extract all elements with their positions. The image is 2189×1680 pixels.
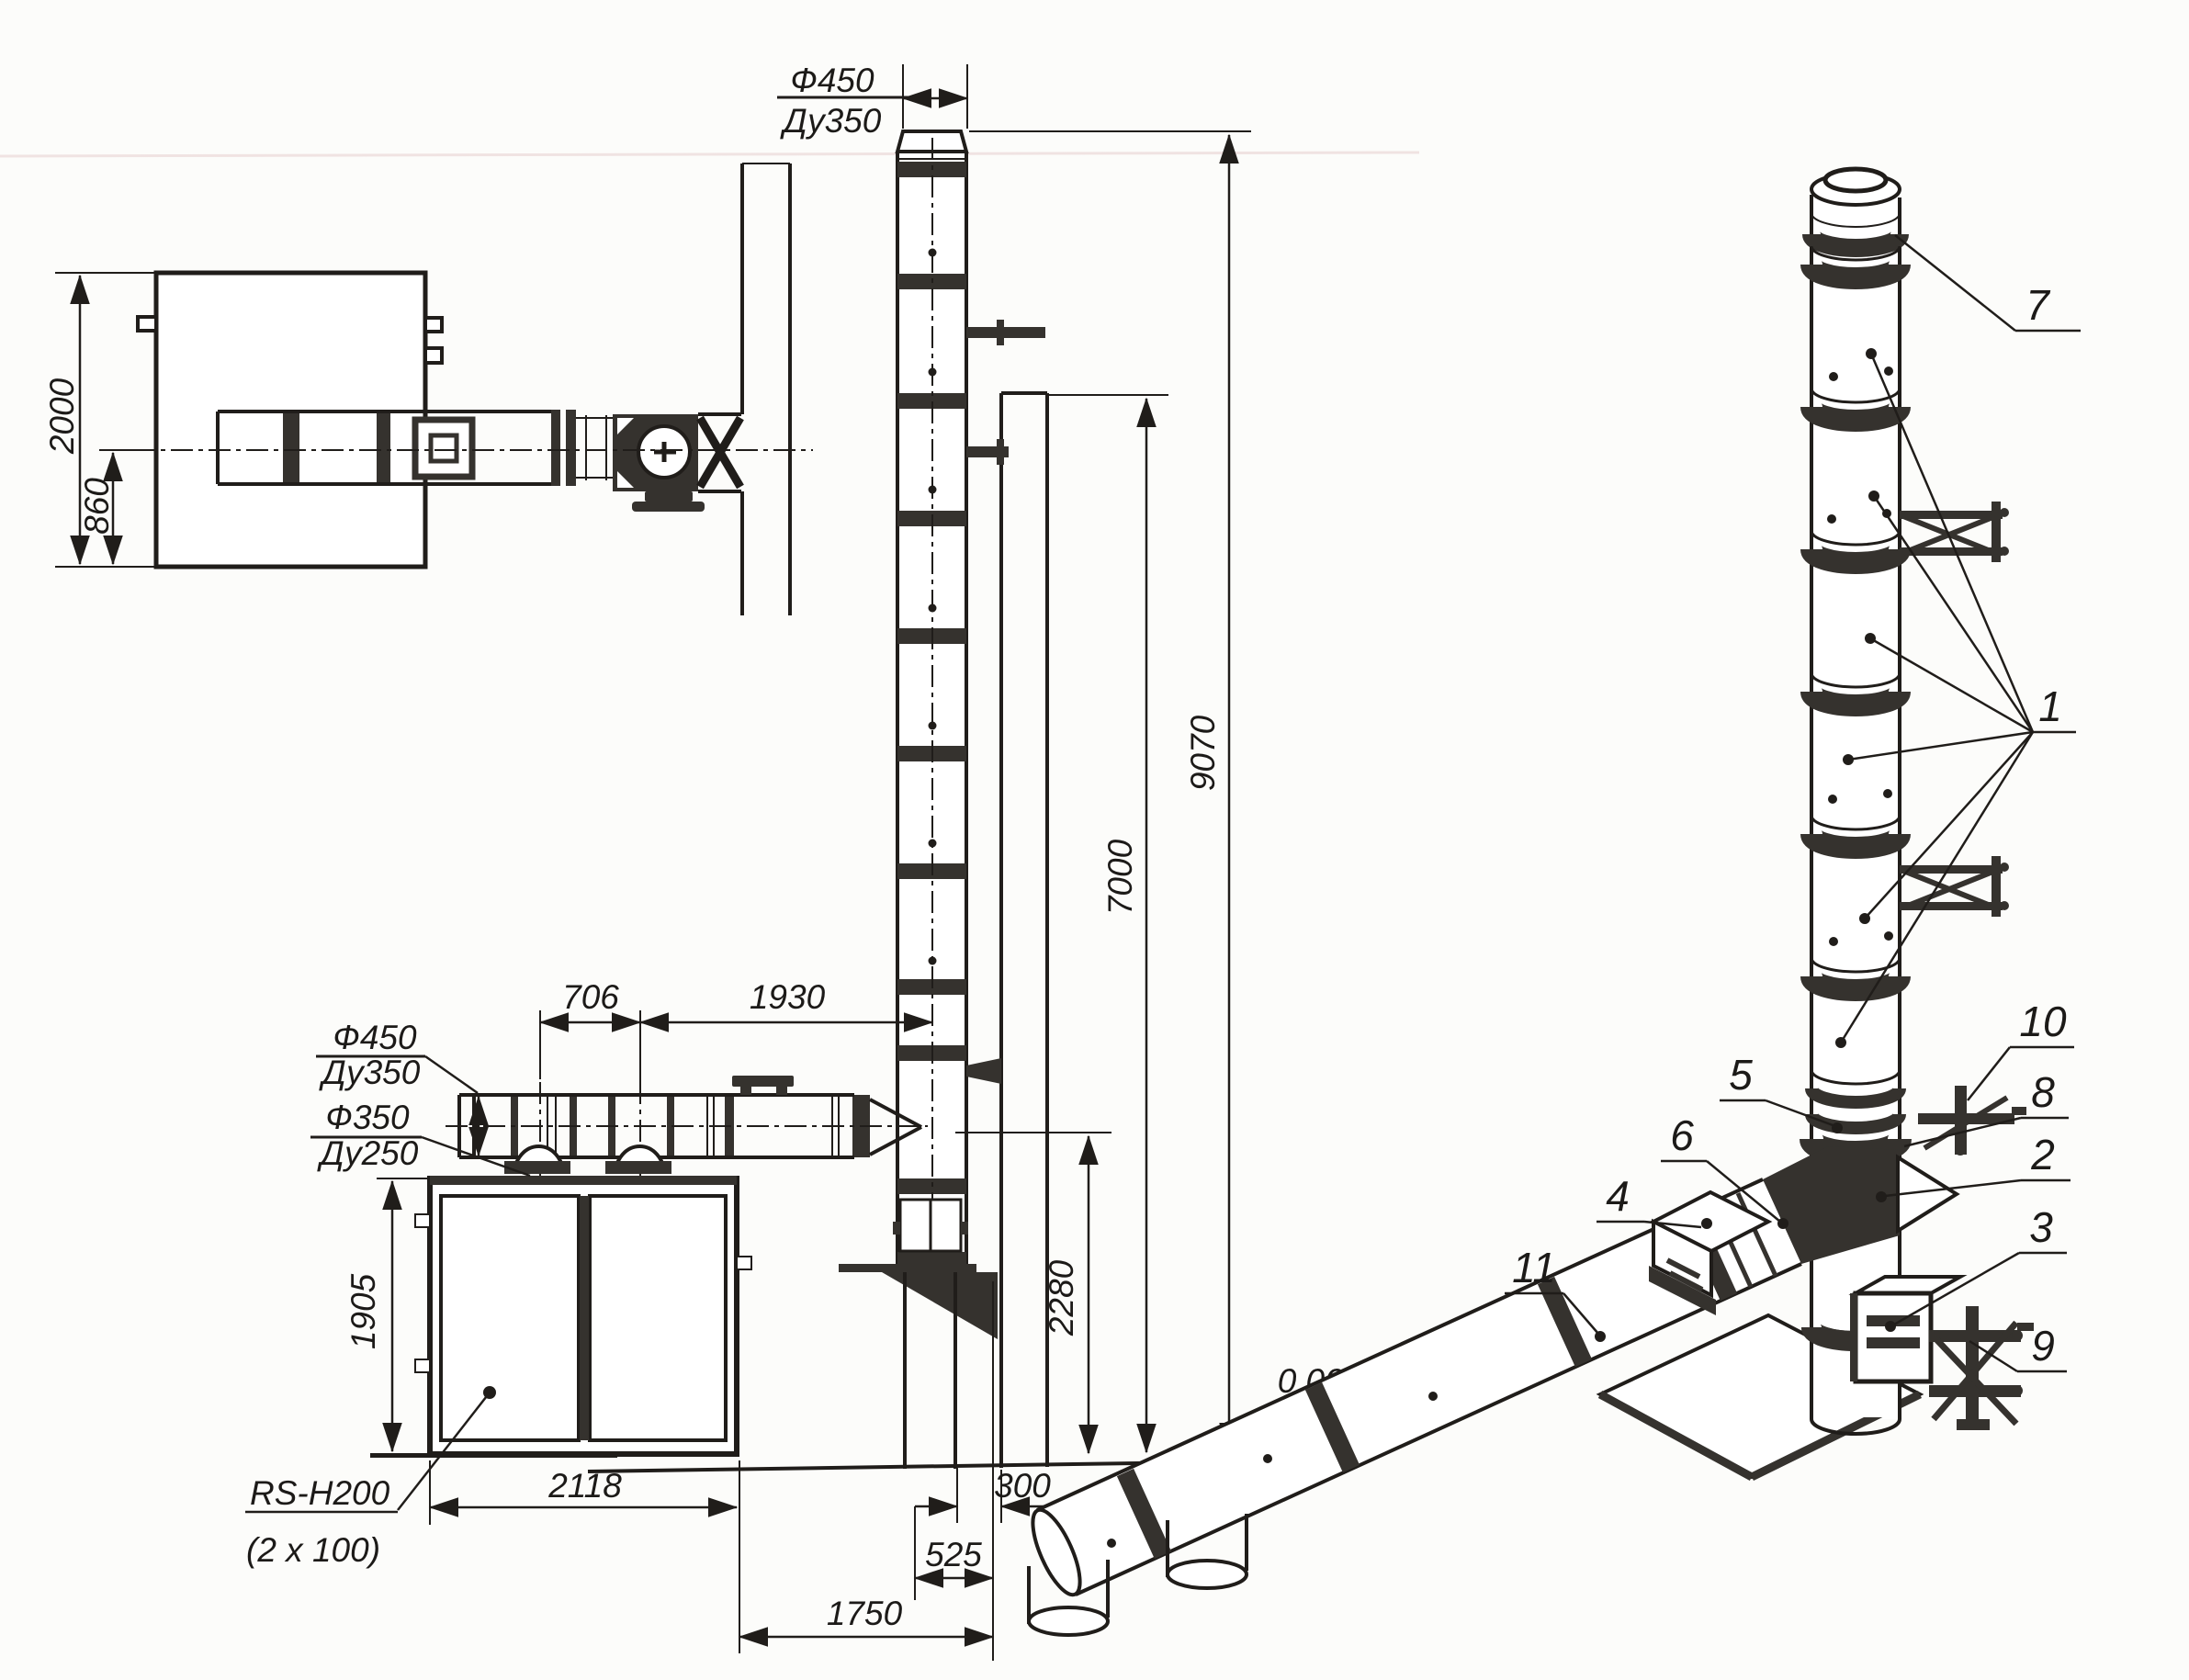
- dim-boiler-height: 1905: [344, 1273, 382, 1349]
- part-label-11: 11: [1512, 1244, 1556, 1291]
- part-label-3: 3: [2029, 1203, 2053, 1251]
- part-label-4: 4: [1606, 1172, 1630, 1220]
- stack-top-diameter: Ф450: [790, 62, 874, 99]
- boiler-model-label: RS-H200: [250, 1474, 390, 1512]
- part-label-5: 5: [1729, 1051, 1753, 1099]
- boiler-plan-stub-right-2: [425, 348, 442, 363]
- dim-duct-axis-height: 2280: [1043, 1259, 1080, 1336]
- dim-boiler-width: 2118: [547, 1467, 622, 1505]
- boiler-front-view: [415, 1176, 751, 1454]
- duct-flange-plan: [551, 410, 560, 486]
- duct-inner-diameter: Ф350: [325, 1099, 410, 1136]
- chimney-installation-drawing: 2000 860: [0, 0, 2189, 1680]
- part-label-6: 6: [1670, 1111, 1694, 1159]
- part-label-8: 8: [2031, 1068, 2055, 1116]
- boiler-plan-stub-right-1: [425, 318, 442, 332]
- boiler-plan-stub-left: [138, 317, 156, 331]
- dim-plan-depth: 2000: [43, 378, 81, 455]
- dim-outlet-spacing: 706: [562, 978, 619, 1016]
- dim-plan-axis-offset: 860: [78, 478, 116, 535]
- dim-wall-height: 7000: [1101, 839, 1139, 915]
- part-label-2: 2: [2030, 1131, 2055, 1178]
- dim-boiler-to-wall: 1750: [827, 1595, 903, 1632]
- dim-total-height: 9070: [1184, 715, 1222, 791]
- dim-base-offset: 525: [925, 1536, 982, 1573]
- dim-duct-run: 1930: [750, 978, 826, 1016]
- part-label-10: 10: [2019, 998, 2067, 1045]
- duct-outer-diameter: Ф450: [333, 1019, 417, 1056]
- part-label-9: 9: [2031, 1322, 2055, 1370]
- duct-outer-dn: Ду350: [319, 1054, 421, 1091]
- duct-inner-dn: Ду250: [317, 1134, 419, 1172]
- part-label-1: 1: [2038, 682, 2062, 730]
- support-console-plate: [839, 1264, 976, 1272]
- scanned-technical-drawing: 2000 860: [0, 0, 2189, 1680]
- part-label-7: 7: [2025, 281, 2050, 329]
- cleanout-door-elevation: [893, 1200, 968, 1251]
- boiler-qty-label: (2 x 100): [246, 1531, 380, 1569]
- dim-wall-gap: 300: [994, 1467, 1051, 1505]
- stack-top-dn: Ду350: [780, 102, 882, 140]
- fan-foot: [645, 491, 693, 502]
